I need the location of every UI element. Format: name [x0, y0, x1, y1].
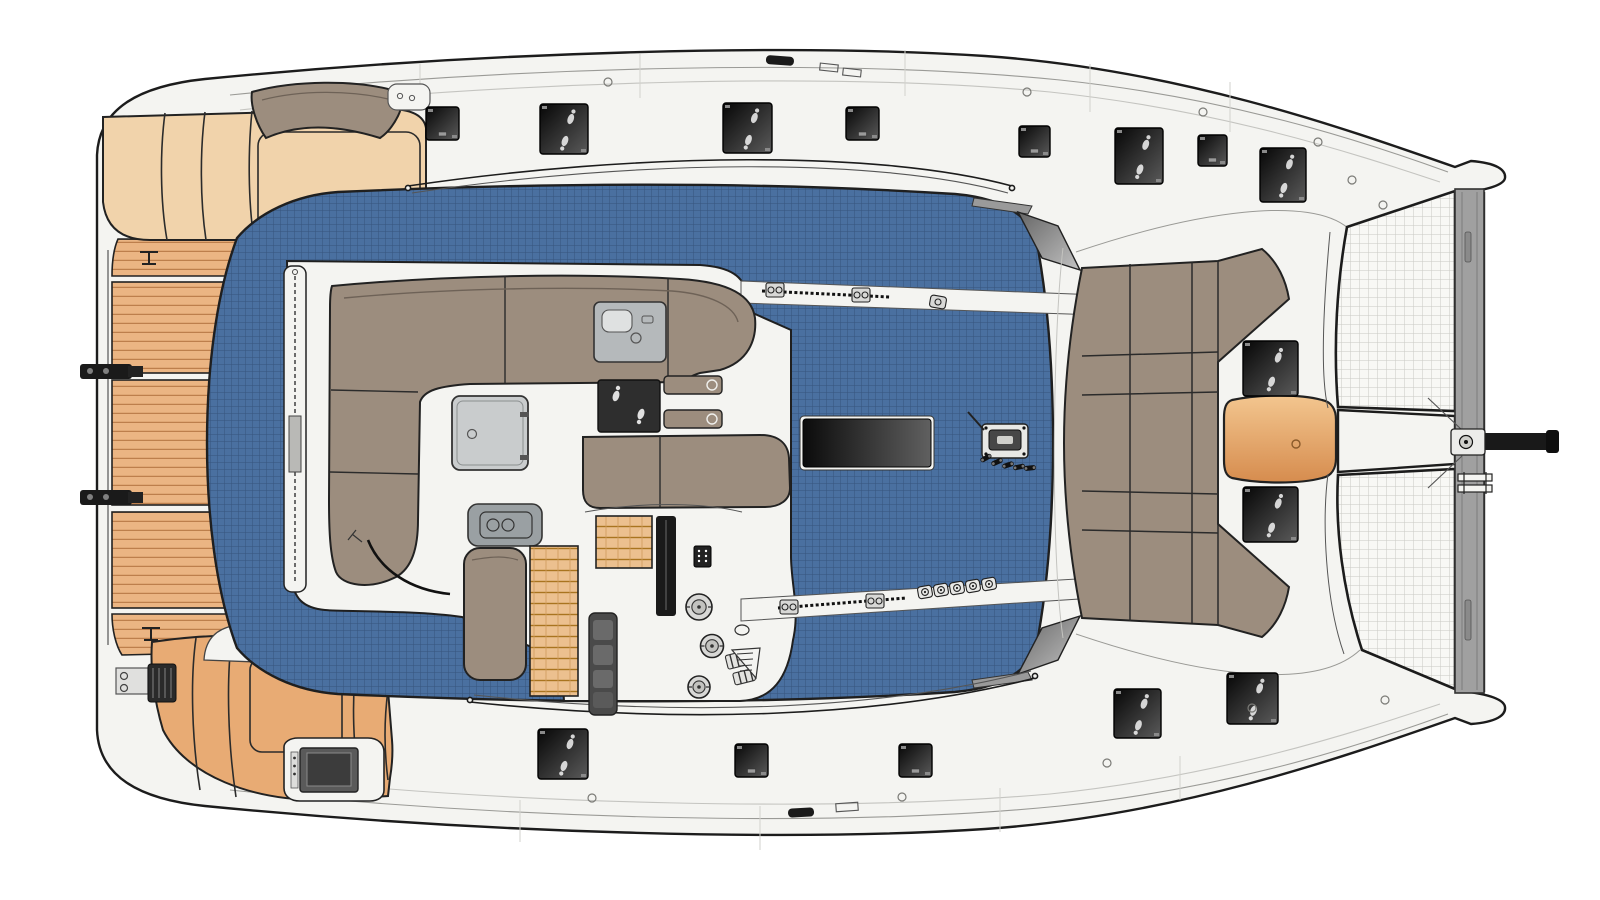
teak-grate-small [596, 516, 652, 568]
aft-cleat-pod [388, 84, 430, 110]
deck-organizer [917, 585, 933, 599]
deck-hatch-large [540, 104, 588, 154]
teak-grate-large [530, 546, 578, 696]
winch [688, 676, 710, 698]
deck-hatch-large [1243, 487, 1298, 542]
deck-hatch-large [1227, 673, 1278, 724]
control-keypad [694, 546, 711, 567]
deck-hatch-large [1114, 689, 1161, 738]
deck-hatch-small [735, 744, 768, 777]
companionway-steps [598, 380, 660, 432]
deck-hatch-small [1019, 126, 1050, 157]
deck-hatch-large [1243, 341, 1298, 396]
galley-module [594, 302, 666, 362]
helm-bench [583, 435, 790, 508]
helm-seat [464, 548, 526, 680]
cockpit-table [452, 396, 529, 470]
sliding-door-track [284, 266, 306, 592]
door-car [289, 416, 301, 472]
side-steps-down [589, 613, 617, 715]
deck-plan-canvas: Catamaran sailboat deck plan - overhead … [0, 0, 1600, 900]
deck-hatch-large [1115, 128, 1163, 184]
deck-hatch-small [899, 744, 932, 777]
bow-walkway [1338, 410, 1455, 472]
deck-hatch-large [538, 729, 588, 779]
saloon-skylight [800, 416, 934, 470]
deck-organizer [981, 577, 997, 591]
trampoline-port [1336, 191, 1455, 411]
deck-hatch-small [1198, 135, 1227, 166]
forward-cockpit-table [1224, 396, 1336, 483]
mooring-cleat-bottom [788, 807, 814, 817]
deck-hatch-large [723, 103, 772, 153]
deck-hatch-small [846, 107, 879, 140]
deck-hatch-small [426, 107, 459, 140]
deck-organizer [933, 583, 949, 597]
display-console [284, 738, 384, 801]
sink-console [468, 504, 542, 546]
deck-hatch-large [1260, 148, 1306, 202]
deck-plan-page: Catamaran sailboat deck plan - overhead … [0, 0, 1600, 900]
galley-sink [602, 310, 632, 332]
winch [701, 635, 724, 658]
deck-organizer [965, 579, 981, 593]
deck-organizer [949, 581, 965, 595]
winch [686, 594, 712, 620]
